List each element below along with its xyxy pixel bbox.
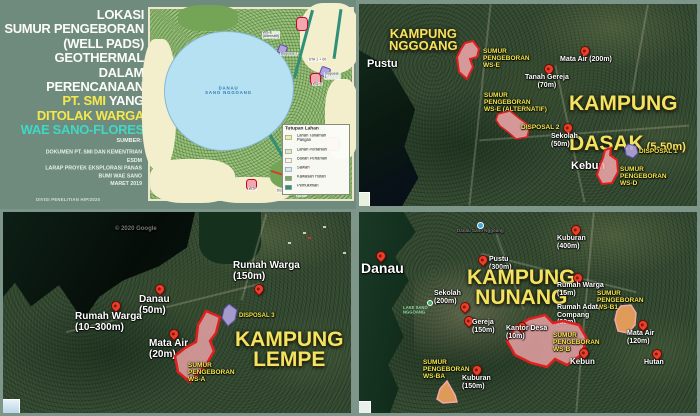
legend-label: Pemukiman (297, 184, 319, 188)
landuse-map: DANAU SANO NGGOANG WS-E (Alternatif) Dis… (148, 7, 354, 201)
wellpad-ws-b1-polygon (615, 305, 636, 333)
title-line: DALAM (2, 66, 144, 80)
title-company: PT. SMI (62, 93, 105, 108)
legend-swatch (285, 167, 292, 172)
label-rumah-warga-150: Rumah Warga (150m) (233, 260, 300, 282)
map-watermark: © 2020 Google (115, 226, 157, 233)
credit-line: DIVISI PENELITIAN HIP/2020 (36, 198, 100, 202)
label-danau: Danau (361, 261, 404, 276)
label-kuburan-150: Kuburan (150m) (462, 375, 491, 390)
label-danau-sano-nggoang: Danau Sano Nggoang (457, 229, 504, 234)
inset-corner (359, 192, 370, 206)
source-text: DOKUMEN PT. SMI DAN KEMENTRIAN ESDM LARA… (36, 149, 143, 188)
legend-item: Lahan Tanaman Pangan (285, 134, 347, 147)
legend-swatch (285, 135, 292, 140)
legend-label: Lahan Tanaman Pangan (297, 134, 326, 143)
legend-item: Lahan Pertanian (285, 148, 347, 156)
forest-patch (178, 5, 238, 31)
building-dot (323, 226, 326, 228)
map-annotation: WTP (248, 187, 257, 191)
label-hutan: Hutan (644, 359, 664, 367)
legend-tutupan-lahan: Tutupan Lahan Lahan Tanaman Pangan Lahan… (282, 124, 350, 195)
title-line: DITOLAK WARGA (2, 109, 144, 123)
map-annotation: WS-E (Alternatif) (262, 31, 280, 39)
label-disposal-1: DISPOSAL 1 (639, 148, 678, 155)
lake-sano-nggoang: DANAU SANO NGGOANG (164, 31, 294, 151)
disposal-1-polygon (625, 144, 638, 158)
legend-item: Bukan Pertanian (285, 157, 347, 165)
map-annotation: Disposal 2 (280, 52, 298, 56)
title-line: (WELL PADS) (2, 37, 144, 51)
source-line: DOKUMEN PT. SMI DAN KEMENTRIAN ESDM (36, 149, 143, 165)
map-kampung-nunang: Danau Danau Sano Nggoang Kuburan (400m) … (359, 212, 697, 413)
page-title: LOKASI SUMUR PENGEBORAN (WELL PADS) GEOT… (2, 8, 144, 138)
map-annotation: STA 1 + 00 (308, 58, 327, 62)
wellpad-ws-d-polygon (597, 148, 619, 185)
legend-swatch (285, 158, 292, 163)
title-line-part: YANG (106, 93, 144, 108)
label-mata-air: Mata Air (120m) (627, 330, 654, 345)
infographic-poster: LOKASI SUMUR PENGEBORAN (WELL PADS) GEOT… (0, 0, 700, 416)
terrain-patch (300, 3, 356, 73)
title-line: PT. SMI YANG (2, 94, 144, 108)
forest-shade (199, 212, 261, 264)
village-label-nggoang: KAMPUNG NGGOANG (389, 28, 458, 53)
legend-label: Lahan Pertanian (297, 148, 327, 152)
title-line: LOKASI (2, 8, 144, 22)
legend-item: Kawasan Hutan (285, 175, 347, 183)
label-sekolah: Sekolah (50m) (551, 133, 578, 148)
label-gereja: Gereja (150m) (472, 319, 495, 334)
village-label-line: KAMPUNG (569, 94, 686, 114)
legend-label: Bukan Pertanian (297, 157, 327, 161)
village-label-lempe: KAMPUNG LEMPE (235, 330, 344, 370)
label-ws-b: SUMUR PENGEBORAN WS-B (553, 332, 600, 353)
map-kampung-dasak: KAMPUNG NGGOANG Pustu SUMUR PENGEBORAN W… (359, 4, 697, 206)
title-line: GEOTHERMAL (2, 51, 144, 65)
building-dot (343, 252, 346, 254)
map-kampung-lempe: © 2020 Google Rumah Warga (150m) Danau (… (3, 212, 351, 413)
panel-title: LOKASI SUMUR PENGEBORAN (WELL PADS) GEOT… (0, 0, 356, 209)
map-annotation: WS-D (312, 82, 323, 86)
title-line: WAE SANO-FLORES (2, 123, 144, 137)
label-kebun: Kebun (570, 358, 595, 367)
label-sekolah: Sekolah (200m) (434, 290, 461, 305)
village-label-dasak: KAMPUNG DASAK(5-50m) (569, 74, 686, 174)
map-annotation: Disposal 1 (324, 72, 341, 80)
label-ws-d: SUMUR PENGEBORAN WS-D (620, 166, 667, 187)
title-line: PERENCANAAN (2, 80, 144, 94)
park-poi-icon (427, 300, 433, 306)
building-dot (308, 237, 311, 239)
label-ws-a: SUMUR PENGEBORAN WS-A (188, 362, 235, 383)
label-rumah-warga-10-300: Rumah Warga (10–300m) (75, 311, 142, 333)
legend-label: Kawasan Hutan (297, 175, 326, 179)
source-line: MARET 2019 (36, 181, 143, 189)
label-mata-air: Mata Air (200m) (560, 56, 612, 64)
label-disposal-3: DISPOSAL 3 (239, 313, 275, 320)
wellpad-shape (296, 17, 308, 31)
label-danau: Danau (50m) (139, 294, 170, 316)
legend-title: Tutupan Lahan (285, 126, 327, 131)
source-line: LARAP PROYEK EKSPLORASI PANAS BUMI WAE S… (36, 165, 143, 181)
legend-item: Pemukiman (285, 184, 347, 192)
label-lake-sano-nggoang: LAKE SANO NGGOANG (403, 306, 428, 315)
building-dot (303, 232, 306, 234)
inset-corner (3, 399, 20, 413)
label-kuburan-400: Kuburan (400m) (557, 235, 586, 250)
label-pustu: Pustu (367, 58, 398, 70)
inset-corner (359, 401, 371, 413)
label-disposal-2: DISPOSAL 2 (521, 124, 560, 131)
wellpad-ws-ba-polygon (437, 381, 457, 403)
legend-label: Sawah (297, 166, 309, 170)
water-poi-icon (477, 222, 484, 229)
label-tanah-gereja: Tanah Gereja (70m) (525, 74, 569, 89)
source-label: SUMBER: (31, 138, 142, 143)
legend-swatch (285, 176, 292, 181)
building-dot (288, 242, 291, 244)
label-ws-e: SUMUR PENGEBORAN WS-E (483, 48, 530, 69)
legend-swatch (285, 185, 292, 190)
lake-water (359, 50, 467, 206)
wellpad-ws-e-polygon (456, 41, 482, 81)
title-line: SUMUR PENGEBORAN (2, 22, 144, 36)
lake-label: DANAU SANO NGGOANG (206, 87, 253, 96)
legend-swatch (285, 149, 292, 154)
legend-item: Sawah (285, 166, 347, 174)
label-kantor-desa: Kantor Desa (10m) (506, 325, 547, 340)
